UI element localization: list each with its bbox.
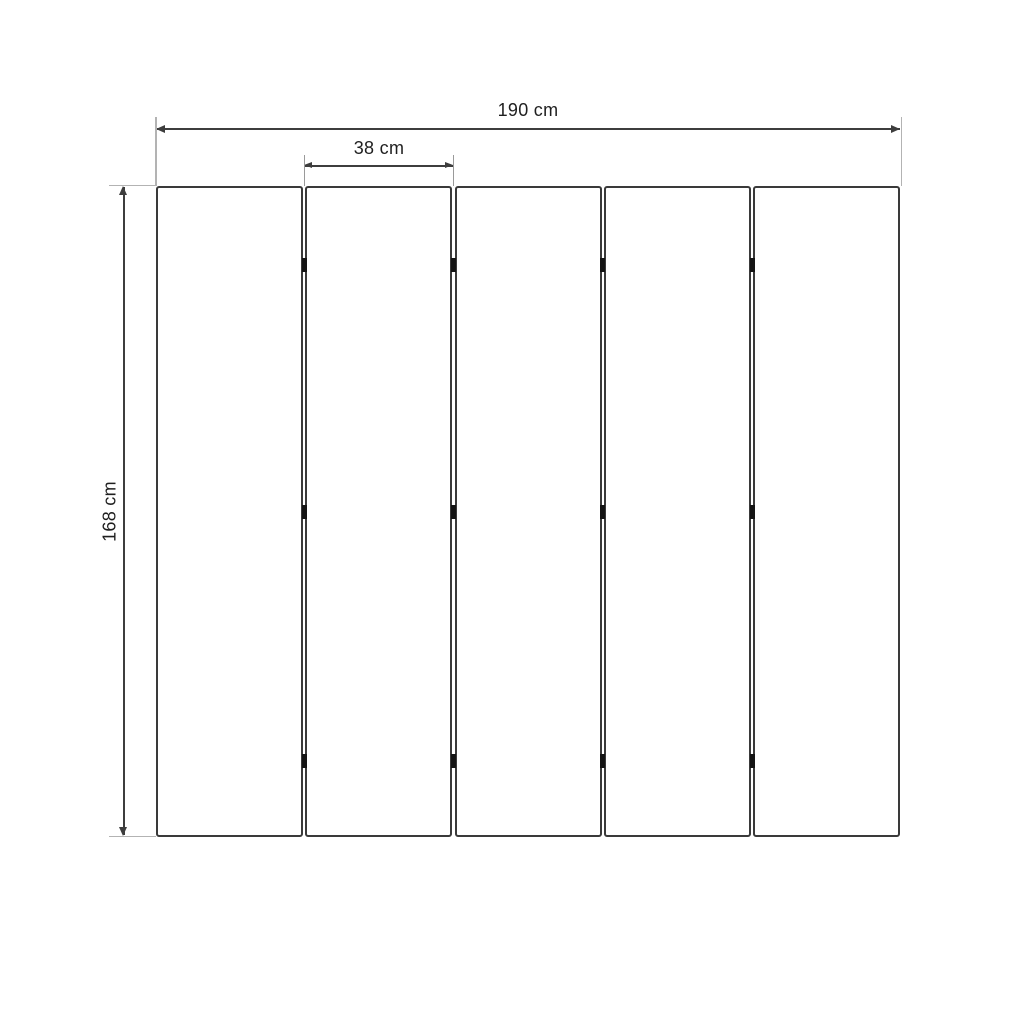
screen-panel-3	[455, 186, 602, 837]
extension-line-left	[304, 155, 305, 186]
extension-line-right	[453, 155, 454, 186]
hinge	[302, 754, 307, 768]
screen-panel-4	[604, 186, 751, 837]
arrow-left-icon	[304, 162, 312, 168]
extension-line-top	[109, 185, 156, 187]
height-dimension-line	[123, 187, 125, 835]
extension-line-left	[155, 117, 157, 186]
total-width-dimension-label: 190 cm	[458, 100, 598, 121]
screen-panel-5	[753, 186, 900, 837]
height-dimension-label: 168 cm	[100, 442, 121, 582]
hinge	[302, 258, 307, 272]
technical-drawing-canvas: 190 cm 38 cm 168 cm	[0, 0, 1024, 1024]
hinge	[451, 505, 456, 519]
hinge	[302, 505, 307, 519]
screen-panel-1	[156, 186, 303, 837]
panel-width-dimension-line	[304, 165, 453, 167]
extension-line-right	[901, 117, 903, 186]
hinge	[600, 754, 605, 768]
hinge	[750, 754, 755, 768]
arrow-left-icon	[156, 125, 165, 133]
arrow-up-icon	[119, 186, 127, 195]
arrow-right-icon	[891, 125, 900, 133]
hinge	[451, 754, 456, 768]
hinge	[750, 505, 755, 519]
hinge	[750, 258, 755, 272]
total-width-dimension-line	[156, 128, 900, 130]
panel-width-dimension-label: 38 cm	[309, 138, 449, 159]
hinge	[600, 258, 605, 272]
screen-panel-2	[305, 186, 452, 837]
hinge	[451, 258, 456, 272]
hinge	[600, 505, 605, 519]
extension-line-bottom	[109, 836, 156, 838]
